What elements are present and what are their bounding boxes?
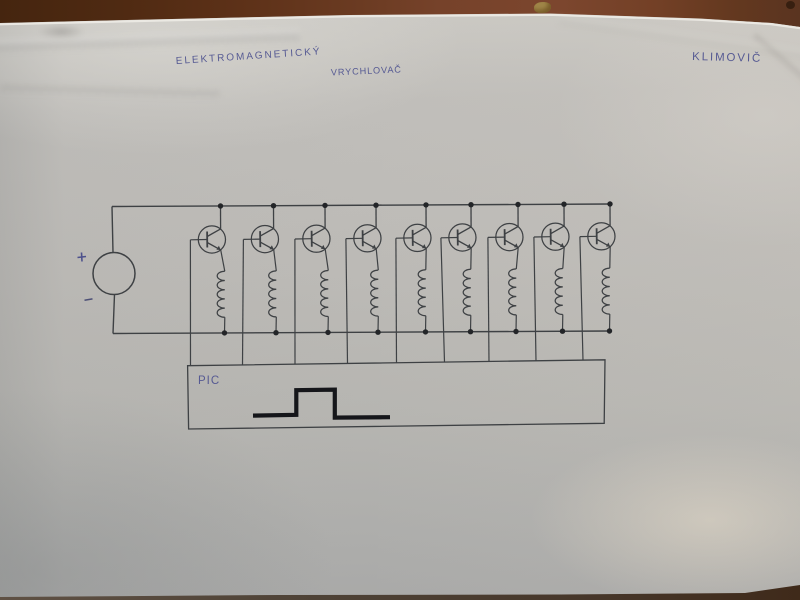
svg-text:ELEKTROMAGNETICKÝ: ELEKTROMAGNETICKÝ	[175, 44, 321, 67]
svg-text:KLIMOVIČ: KLIMOVIČ	[692, 50, 762, 65]
svg-text:PIC: PIC	[198, 375, 220, 387]
svg-text:VRYCHLOVAČ: VRYCHLOVAČ	[331, 64, 402, 77]
